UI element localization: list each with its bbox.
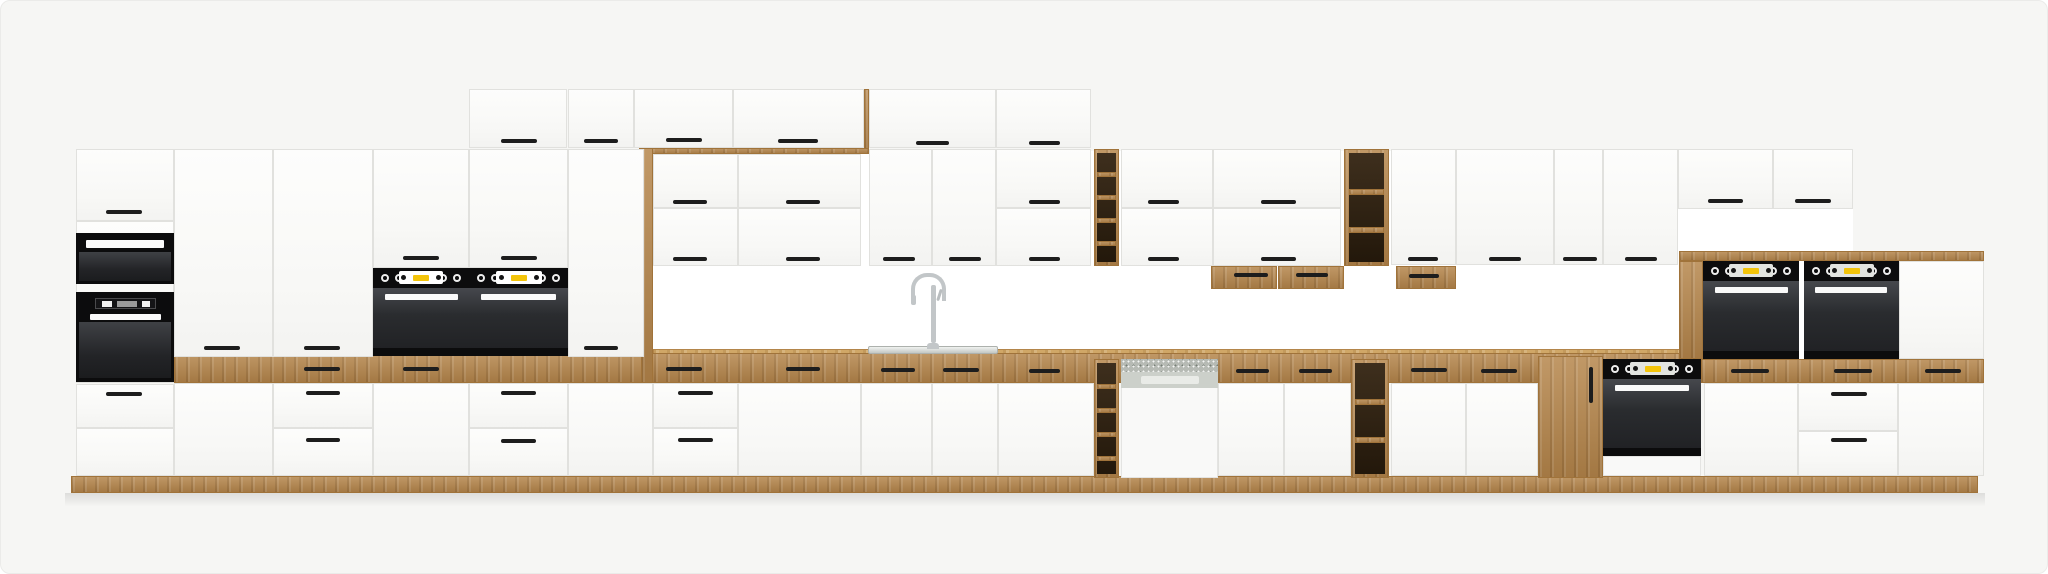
cabinet-handle bbox=[1563, 257, 1597, 261]
cabinet-handle bbox=[1411, 368, 1447, 372]
oven-knob-dot bbox=[499, 275, 504, 280]
elevated-counter-slab bbox=[1679, 251, 1984, 261]
cabinet-handle bbox=[584, 346, 618, 350]
oven-knob-icon bbox=[453, 274, 461, 282]
wall-cabinet-door bbox=[932, 149, 996, 266]
display-segment bbox=[117, 301, 137, 307]
kitchen-product-render bbox=[0, 0, 2048, 574]
shelf-board bbox=[1097, 384, 1116, 389]
shelf-board bbox=[1097, 408, 1116, 413]
oven-tower-upper-door bbox=[469, 149, 568, 268]
base-drawer bbox=[273, 428, 373, 476]
tall-pantry-door bbox=[174, 149, 273, 357]
oven-unit-side-panel bbox=[1679, 261, 1703, 359]
oven-door-handle bbox=[1715, 287, 1788, 293]
cabinet-handle bbox=[916, 141, 949, 145]
oven-display-accent bbox=[413, 275, 429, 281]
built-in-microwave bbox=[76, 233, 174, 284]
shelf-board bbox=[1097, 195, 1116, 200]
cabinet-handle bbox=[1834, 369, 1872, 373]
oven-control-plate bbox=[1729, 264, 1773, 277]
oven-door-handle bbox=[1615, 385, 1689, 391]
cabinet-handle bbox=[1731, 369, 1769, 373]
faucet-nozzle bbox=[911, 295, 916, 305]
wall-cabinet-door bbox=[1554, 149, 1603, 265]
oven-display-accent bbox=[1645, 366, 1661, 372]
base-door bbox=[1704, 383, 1798, 476]
under-cabinet-wood-drawer bbox=[1211, 266, 1277, 289]
wall-cabinet-door bbox=[1456, 149, 1554, 265]
wall-cabinet-door bbox=[869, 149, 932, 266]
base-door bbox=[568, 383, 653, 476]
microwave-glass bbox=[79, 252, 171, 281]
oven-display-accent bbox=[511, 275, 527, 281]
base-door bbox=[373, 383, 469, 476]
shelf-opening bbox=[1355, 363, 1385, 474]
oven-lower-drawer bbox=[1603, 456, 1701, 476]
base-drawer bbox=[76, 384, 174, 428]
oven-display-accent bbox=[1743, 268, 1759, 274]
base-drawer bbox=[469, 428, 568, 476]
cabinet-handle bbox=[106, 210, 142, 214]
cabinet-handle bbox=[778, 139, 818, 143]
oven-knob-icon bbox=[1685, 365, 1693, 373]
oven-knob-dot bbox=[1766, 268, 1771, 273]
oven-door-handle bbox=[385, 294, 458, 300]
cabinet-handle bbox=[881, 368, 915, 372]
cabinet-handle bbox=[1481, 369, 1517, 373]
built-in-oven bbox=[469, 268, 568, 356]
built-in-oven bbox=[1603, 359, 1701, 476]
cabinet-handle bbox=[666, 367, 702, 371]
cabinet-handle bbox=[1261, 200, 1296, 204]
built-in-oven bbox=[1804, 261, 1899, 359]
oven-knob-icon bbox=[477, 274, 485, 282]
dishwasher-steel-strip bbox=[1121, 359, 1218, 372]
microwave-handle bbox=[86, 240, 164, 248]
base-door bbox=[1898, 383, 1984, 476]
cabinet-handle bbox=[1029, 369, 1060, 373]
cabinet-handle bbox=[501, 391, 536, 395]
cabinet-handle bbox=[1831, 438, 1867, 442]
cabinet-handle bbox=[1409, 274, 1439, 278]
cabinet-handle bbox=[1625, 257, 1657, 261]
cabinet-handle bbox=[678, 391, 713, 395]
oven-knob-dot bbox=[534, 275, 539, 280]
shelf-board bbox=[1097, 172, 1116, 177]
oven-door-handle bbox=[90, 314, 161, 320]
base-door bbox=[1284, 383, 1351, 476]
oven-base-strip bbox=[1603, 448, 1701, 456]
base-door bbox=[1218, 383, 1284, 476]
built-in-dishwasher bbox=[1121, 359, 1218, 478]
cabinet-handle bbox=[106, 392, 142, 396]
shelf-opening bbox=[1349, 153, 1384, 262]
oven-control-plate bbox=[496, 271, 542, 284]
tall-pantry-door bbox=[273, 149, 373, 357]
cabinet-handle bbox=[1236, 369, 1269, 373]
cabinet-handle bbox=[1148, 200, 1179, 204]
cabinet-handle bbox=[1234, 273, 1268, 277]
shelf-board bbox=[1355, 399, 1385, 405]
oven-knob-icon bbox=[381, 274, 389, 282]
cabinet-handle bbox=[501, 439, 536, 443]
sink-base-door bbox=[932, 383, 998, 476]
faucet-spout-arc bbox=[911, 273, 946, 301]
wall-cabinet-door bbox=[1391, 149, 1456, 265]
cabinet-handle bbox=[943, 368, 979, 372]
top-cabinet-door bbox=[996, 89, 1091, 148]
cabinet-handle bbox=[306, 438, 340, 442]
cabinet-handle bbox=[584, 139, 618, 143]
oven-display bbox=[95, 298, 156, 309]
cabinet-handle bbox=[1148, 257, 1179, 261]
oven-door-handle bbox=[1815, 287, 1887, 293]
oven-knob-icon bbox=[1812, 267, 1820, 275]
oven-knob-icon bbox=[1783, 267, 1791, 275]
cabinet-handle bbox=[786, 257, 820, 261]
built-in-oven bbox=[1703, 261, 1799, 359]
appliance-panel-door bbox=[1899, 261, 1984, 359]
oven-knob-icon bbox=[1883, 267, 1891, 275]
base-door bbox=[76, 428, 174, 476]
oven-control-plate bbox=[1830, 264, 1874, 277]
cabinet-handle bbox=[883, 257, 915, 261]
oven-knob-dot bbox=[1867, 268, 1872, 273]
built-in-oven-tower bbox=[76, 292, 174, 382]
oven-tower-upper-door bbox=[373, 149, 469, 268]
cabinet-handle bbox=[1708, 199, 1743, 203]
cabinet-handle bbox=[403, 367, 439, 371]
cabinet-handle bbox=[304, 346, 340, 350]
base-door bbox=[738, 383, 861, 476]
cabinet-handle bbox=[403, 256, 439, 260]
base-drawer bbox=[653, 383, 738, 428]
oven-control-plate bbox=[399, 271, 443, 284]
shelf-board bbox=[1097, 432, 1116, 437]
faucet-base bbox=[927, 343, 939, 349]
oven-knob-icon bbox=[552, 274, 560, 282]
wood-base-door bbox=[1538, 356, 1603, 478]
kitchen-faucet bbox=[905, 273, 949, 349]
cabinet-handle bbox=[1296, 273, 1328, 277]
sink-base-door bbox=[861, 383, 932, 476]
base-drawer bbox=[273, 383, 373, 428]
cabinet-handle bbox=[1029, 257, 1060, 261]
oven-knob-dot bbox=[1668, 366, 1673, 371]
built-in-oven bbox=[373, 268, 469, 356]
base-drawer bbox=[469, 383, 568, 428]
dishwasher-control-band bbox=[1121, 372, 1218, 388]
dishwasher-button-plate bbox=[1141, 376, 1199, 384]
oven-door-handle bbox=[481, 294, 556, 300]
floor-shadow bbox=[65, 493, 1985, 507]
display-segment bbox=[102, 301, 112, 307]
cabinet-handle bbox=[949, 257, 981, 261]
oven-knob-dot bbox=[1731, 268, 1736, 273]
cabinet-handle bbox=[1589, 367, 1593, 403]
cabinet-handle bbox=[1299, 369, 1332, 373]
cabinet-handle bbox=[304, 367, 340, 371]
base-door bbox=[1466, 383, 1538, 476]
plinth bbox=[71, 476, 1978, 493]
under-cabinet-wood-drawer bbox=[1278, 266, 1344, 289]
cabinet-handle bbox=[1489, 257, 1521, 261]
oven-knob-dot bbox=[1633, 366, 1638, 371]
faucet-riser-pipe bbox=[931, 285, 936, 343]
shelf-board bbox=[1097, 218, 1116, 223]
cabinet-handle bbox=[306, 391, 340, 395]
cabinet-handle bbox=[204, 346, 240, 350]
base-door bbox=[174, 383, 273, 476]
oven-knob-icon bbox=[1711, 267, 1719, 275]
shelf-board bbox=[1355, 437, 1385, 443]
cabinet-handle bbox=[786, 200, 820, 204]
cabinet-handle bbox=[1831, 392, 1867, 396]
oven-knob-dot bbox=[436, 275, 441, 280]
cabinet-handle bbox=[501, 256, 537, 260]
oven-display-accent bbox=[1844, 268, 1860, 274]
shelf-board bbox=[1349, 227, 1384, 233]
base-drawer bbox=[1798, 383, 1898, 431]
base-door bbox=[1391, 383, 1466, 476]
top-cabinet-door bbox=[869, 89, 996, 148]
oven-control-plate bbox=[1630, 362, 1675, 375]
oven-knob-dot bbox=[401, 275, 406, 280]
cabinet-handle bbox=[678, 438, 713, 442]
cabinet-handle bbox=[673, 257, 707, 261]
display-segment bbox=[142, 301, 150, 307]
base-door bbox=[998, 383, 1094, 476]
cabinet-handle bbox=[1795, 199, 1831, 203]
shelf-board bbox=[1097, 241, 1116, 246]
cabinet-handle bbox=[501, 139, 537, 143]
cabinet-handle bbox=[1261, 257, 1296, 261]
cabinet-handle bbox=[1408, 257, 1438, 261]
tall-pantry-door bbox=[568, 149, 644, 357]
cabinet-handle bbox=[666, 138, 702, 142]
base-drawer bbox=[653, 428, 738, 476]
cabinet-handle bbox=[673, 200, 707, 204]
cabinet-handle bbox=[1029, 141, 1060, 145]
shelf-board bbox=[1349, 189, 1384, 195]
cabinet-handle bbox=[1925, 369, 1961, 373]
oven-knob-dot bbox=[1832, 268, 1837, 273]
cabinet-handle bbox=[786, 367, 820, 371]
wall-cabinet-door bbox=[1603, 149, 1678, 265]
oven-knob-icon bbox=[1611, 365, 1619, 373]
oven-door-glass bbox=[79, 322, 171, 378]
shelf-board bbox=[1097, 456, 1116, 461]
cabinet-handle bbox=[1029, 200, 1060, 204]
